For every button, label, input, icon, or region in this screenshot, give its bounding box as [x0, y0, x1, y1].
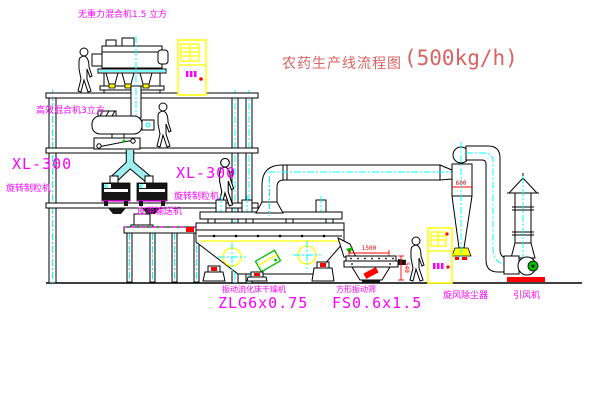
label-fan: 引风机: [513, 292, 540, 301]
induced-draft-fan: [504, 256, 545, 282]
vibrating-sieve: 1500 540: [344, 245, 410, 283]
person-figure: [157, 103, 171, 147]
main-exhaust-duct: [256, 165, 460, 216]
label-dryer-name: 振动流化床干燥机: [222, 286, 286, 294]
label-dryer-model: ZLG6x0.75: [218, 296, 308, 311]
cyclone-separator: 600: [452, 142, 522, 272]
label-high-efficiency-mixer: 高效混合机3立方: [36, 107, 105, 116]
conveyor-support-columns: [127, 233, 199, 282]
label-gravity-free-mixer: 无重力混合机1.5 立方: [78, 11, 167, 20]
label-granulator-left-name: 旋转制粒机: [6, 185, 51, 194]
label-granulator-right-name: 旋转制粒机: [174, 193, 219, 202]
control-cabinet-bottom: [428, 228, 452, 283]
label-granulator-left-model: XL-300: [12, 157, 72, 172]
person-figure: [78, 48, 92, 92]
label-granulator-right-model: XL-300: [176, 166, 236, 181]
sieve-height-dimension: 540: [403, 262, 410, 273]
granulator-left: [102, 176, 130, 206]
label-belt-conveyor: 皮带输送机: [137, 208, 182, 217]
label-sieve-model: FS0.6x1.5: [332, 296, 422, 311]
diagram-title: 农药生产线流程图 (500kg/h): [282, 46, 518, 73]
person-figure: [410, 237, 424, 281]
granulator-right: [137, 176, 167, 206]
dryer-discharge-chute: [338, 238, 356, 257]
sieve-length-dimension: 1500: [362, 245, 377, 252]
label-cyclone: 旋风除尘器: [443, 292, 488, 301]
feed-pipe-y: [114, 150, 148, 179]
cad-flow-diagram: 1500 540 600: [0, 0, 600, 403]
diagram-title-text: 农药生产线流程图: [282, 53, 402, 73]
control-cabinet-top: [178, 40, 206, 95]
high-efficiency-mixer: [92, 111, 154, 149]
label-sieve-name: 方形振动筛: [336, 286, 376, 294]
diagram-title-capacity: (500kg/h): [404, 46, 518, 70]
